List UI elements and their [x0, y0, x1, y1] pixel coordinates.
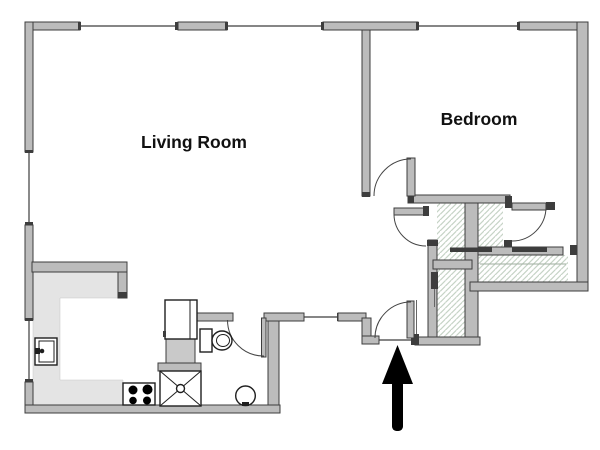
bedroom-divider-wall [362, 30, 370, 196]
bottom-wall-left [25, 405, 280, 413]
closet-rod [450, 248, 492, 253]
closet-door-leaf [394, 208, 427, 215]
entry-bottom-wall [415, 337, 480, 345]
entry-arrow [382, 345, 413, 431]
burner [129, 397, 137, 405]
bathroom-fixtures [200, 329, 255, 406]
toilet-tank [200, 329, 212, 352]
bedroom-label: Bedroom [441, 109, 518, 129]
outer-walls [25, 22, 588, 413]
counter-over-washer [158, 363, 201, 371]
bathroom-north-wall-left [197, 313, 233, 321]
bathroom-north-wall-right [264, 313, 304, 321]
center-closet-divider [433, 260, 472, 269]
closet-hatch-areas [437, 203, 568, 337]
center-closet-hatch-bottom [437, 269, 465, 337]
bedroom-door-swing [374, 159, 411, 196]
closet-bottom-wall [470, 282, 588, 291]
burner [143, 397, 151, 405]
basin-tap [242, 402, 249, 406]
floor-plan: Living Room Bedroom [0, 0, 600, 450]
front-door-leaf [407, 301, 414, 338]
entry-arrow-stem [392, 380, 403, 431]
burner [129, 386, 138, 395]
closet-sliding-door [431, 272, 438, 289]
refrigerator [165, 300, 197, 339]
faucet [40, 349, 45, 354]
washer-knob [177, 385, 185, 393]
right-closet-door-leaf [512, 203, 546, 210]
bathroom-door-leaf [262, 318, 267, 357]
kitchen-cabinet [166, 339, 195, 363]
entry-bottom-stub [362, 336, 379, 344]
floor-plan-drawing: Living Room Bedroom [0, 0, 600, 450]
right-closet-door-swing [512, 207, 546, 241]
burner [143, 385, 153, 395]
right-wall [577, 22, 588, 291]
front-door-swing [375, 302, 411, 338]
bathroom-east-wall [268, 321, 279, 405]
wall-segment [323, 22, 418, 30]
right-closet-hatch-patch [478, 203, 503, 247]
interior-walls [32, 30, 588, 405]
bedroom-south-wall [408, 195, 510, 203]
closet-dividing-wall [465, 203, 478, 345]
right-closet-hatch-strip [478, 255, 568, 282]
entry-arrow-head [382, 345, 413, 384]
closet-rod [512, 247, 547, 252]
door-stop [546, 202, 555, 210]
kitchen-half-wall [32, 262, 127, 272]
closet-door-swing [394, 214, 426, 246]
left-wall-upper [25, 22, 33, 152]
center-closet-left-wall [428, 240, 437, 345]
wall-segment [178, 22, 227, 30]
bathroom-door-swing [228, 320, 265, 356]
bedroom-door-leaf [407, 158, 415, 196]
living-room-label: Living Room [141, 132, 247, 152]
